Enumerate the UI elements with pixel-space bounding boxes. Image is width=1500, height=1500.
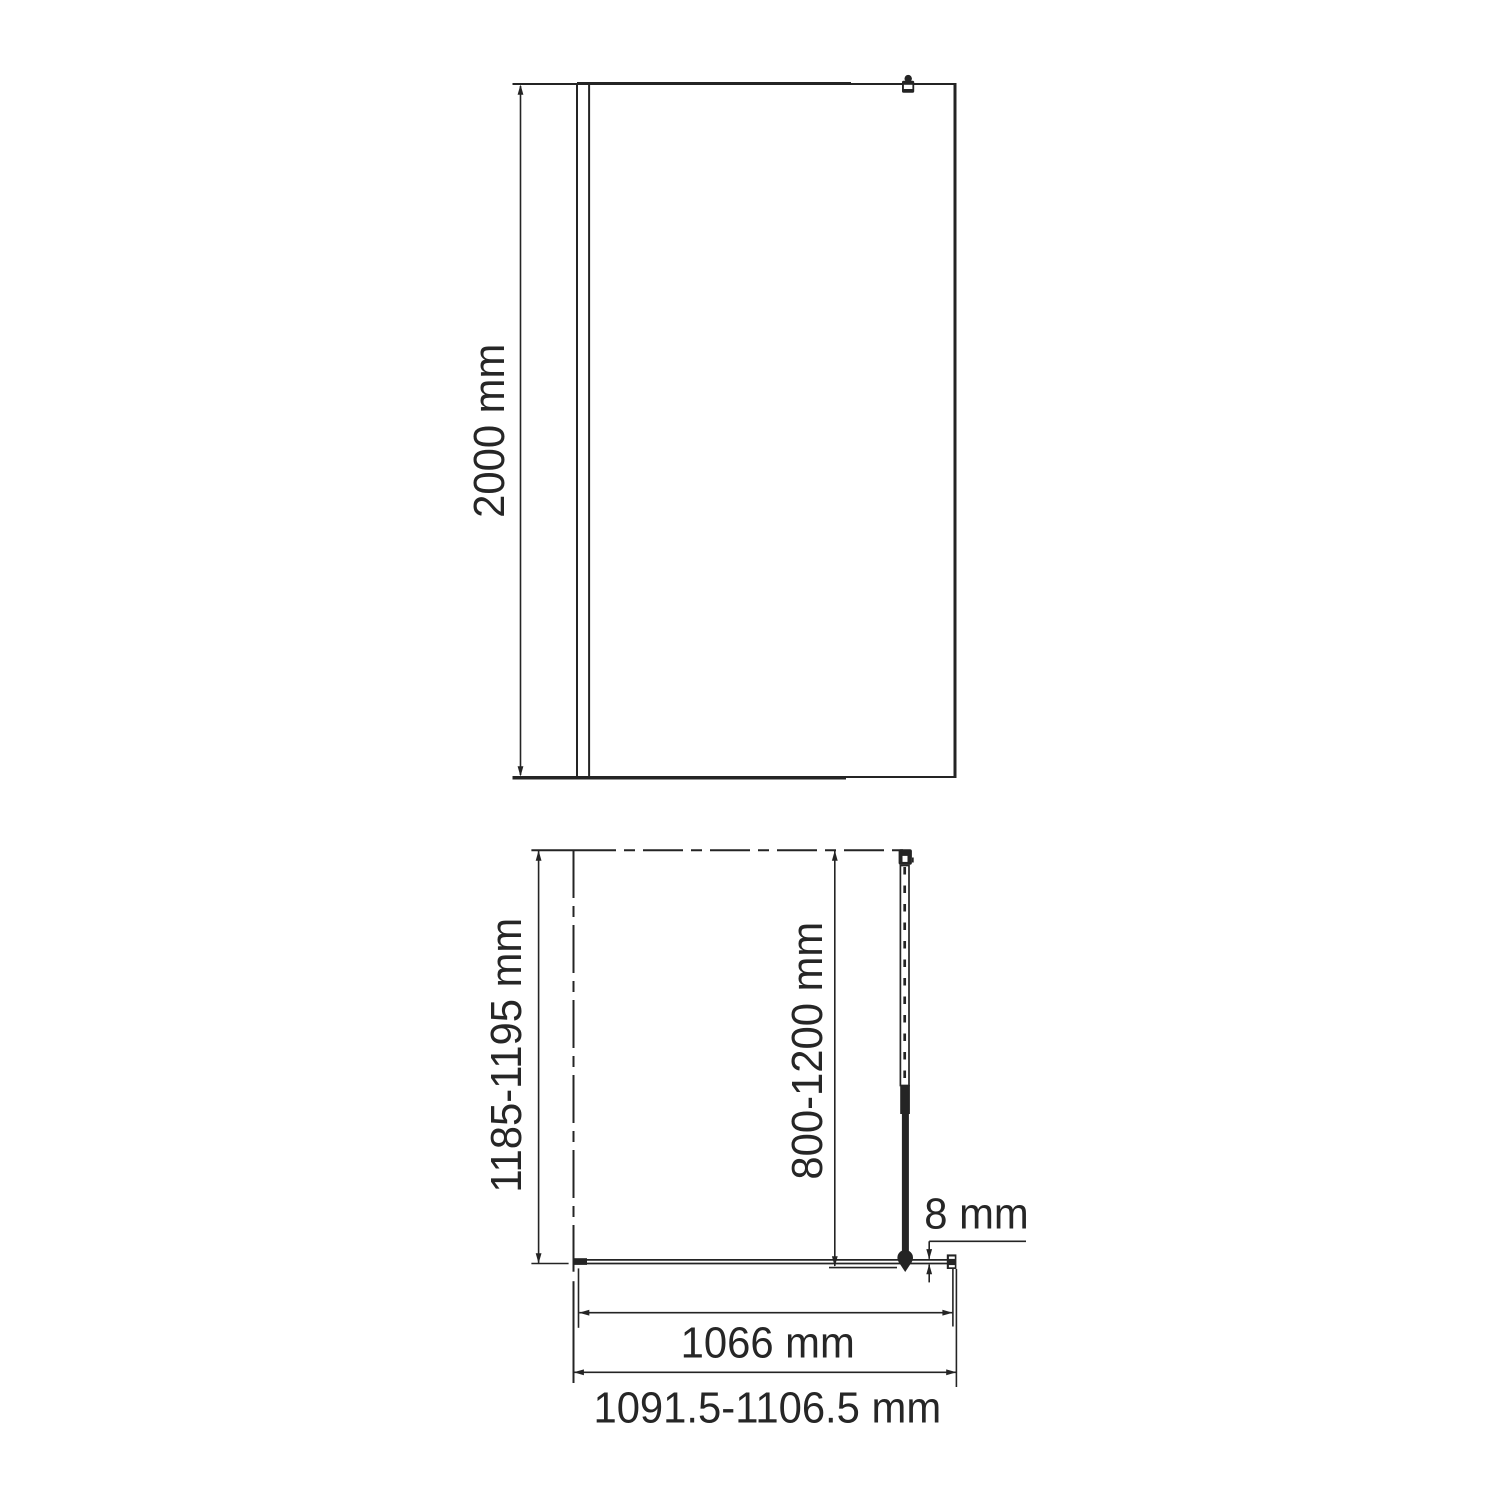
svg-text:1185-1195 mm: 1185-1195 mm bbox=[482, 918, 531, 1193]
svg-text:1066 mm: 1066 mm bbox=[681, 1319, 855, 1368]
svg-text:2000 mm: 2000 mm bbox=[465, 344, 514, 518]
svg-text:800-1200 mm: 800-1200 mm bbox=[783, 922, 832, 1180]
svg-text:1091.5-1106.5 mm: 1091.5-1106.5 mm bbox=[593, 1384, 941, 1433]
svg-text:8 mm: 8 mm bbox=[924, 1190, 1028, 1239]
